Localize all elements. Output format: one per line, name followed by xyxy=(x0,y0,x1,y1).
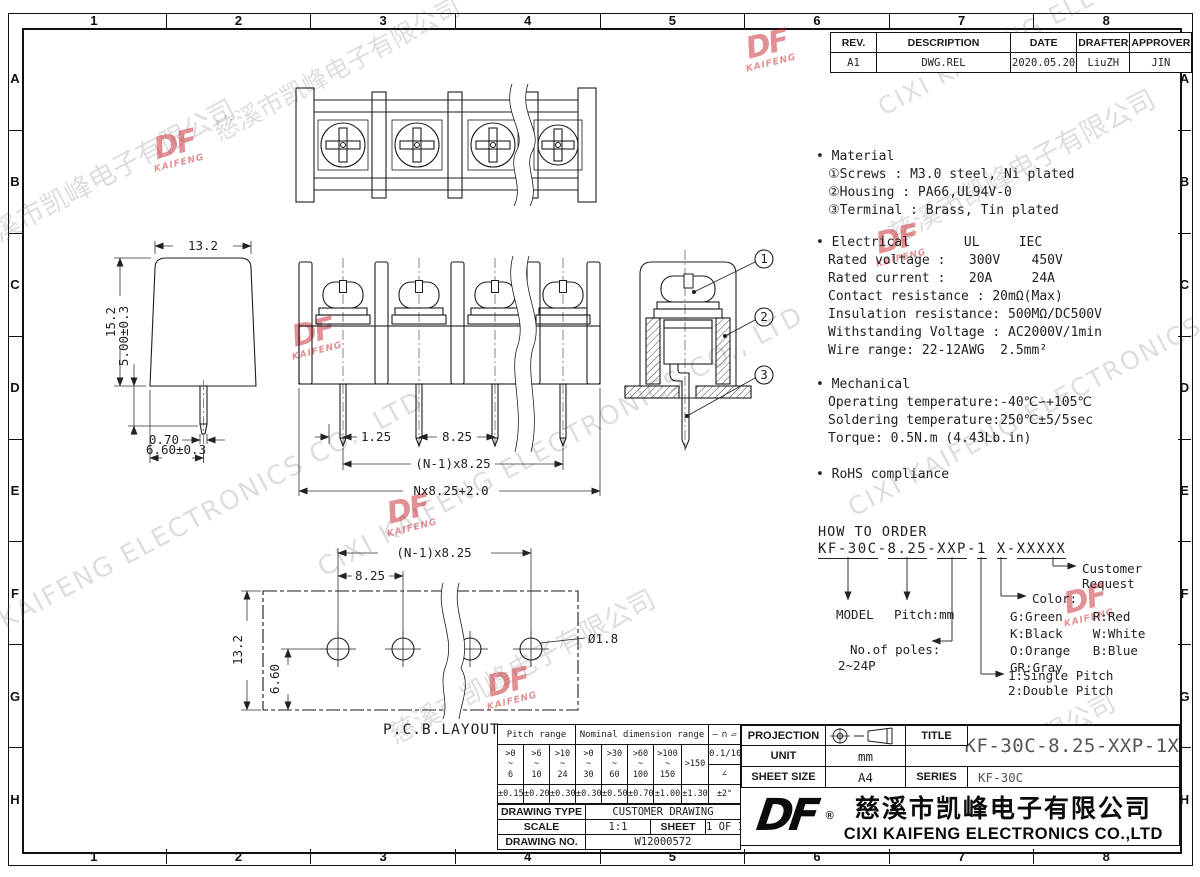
angle-symbol: ∠ xyxy=(709,764,740,784)
revision-header-row: REV. DESCRIPTION DATE DRAFTER APPROVER xyxy=(831,33,1192,53)
tolerance-block: Pitch range Nominal dimension range —∩▱ … xyxy=(497,724,741,850)
approver-value: JIN xyxy=(1130,53,1192,73)
electrical-title: • Electrical xyxy=(816,235,910,250)
order-label-model: MODEL xyxy=(836,606,874,623)
grid-col-label: 1 xyxy=(22,13,167,28)
dim-side-pin-offset: 6.60±0.3 xyxy=(146,442,206,457)
material-title: • Material xyxy=(816,148,1190,166)
drawing-sheet: 慈溪市凯峰电子有限公司 慈溪市凯峰电子有限公司 慈溪市凯峰电子有限公司 CIXI… xyxy=(0,0,1200,877)
description-header: DESCRIPTION xyxy=(877,33,1011,53)
dim-front-d: Nx8.25+2.0 xyxy=(413,483,488,498)
tolerance-cell: ±0.20 xyxy=(524,785,550,804)
order-label-color: Color: xyxy=(1032,590,1077,607)
grid-col-label: 8 xyxy=(1034,849,1178,864)
revision-data-row: A1 DWG.REL 2020.05.20 LiuZH JIN xyxy=(831,53,1192,73)
grid-row-label: H xyxy=(8,748,22,850)
dim-side-pin-length: 5.00±0.3 xyxy=(116,306,131,366)
grid-row-label: C xyxy=(8,234,22,337)
order-color-row: G:Green R:Red xyxy=(1010,608,1130,625)
tolerance-cell: ±0.15 xyxy=(498,785,524,804)
material-line: ②Housing : PA66,UL94V-0 xyxy=(816,184,1190,202)
grid-col-label: 3 xyxy=(311,849,456,864)
callout-3: 3 xyxy=(760,367,768,382)
mechanical-title: • Mechanical xyxy=(816,376,1190,394)
dim-front-a: 1.25 xyxy=(361,429,391,444)
date-value: 2020.05.20 xyxy=(1011,53,1077,73)
approver-header: APPROVER xyxy=(1130,33,1192,53)
angle-ratio: 0.1/10 xyxy=(709,745,740,764)
company-area: DF ® 慈溪市凯峰电子有限公司 CIXI KAIFENG ELECTRONIC… xyxy=(741,787,1179,845)
drawing-no-value: W12000572 xyxy=(586,835,741,850)
sheet-size-value: A4 xyxy=(825,766,906,788)
arc-symbol: ∩ xyxy=(722,730,727,740)
how-to-order: HOW TO ORDER KF-30C-8.25-XXP-1 X-XXXXX M… xyxy=(818,524,1190,714)
top-view-drawing xyxy=(286,84,606,206)
projection-label: PROJECTION xyxy=(741,725,826,746)
drawing-type-value: CUSTOMER DRAWING xyxy=(586,805,741,820)
grid-row-label: E xyxy=(8,440,22,543)
grid-row-label: G xyxy=(8,645,22,748)
side-view-drawing: 13.2 15.2 5.00±0.3 0.70 6.60±0.3 xyxy=(88,236,278,476)
dim-pcb-a: (N-1)x8.25 xyxy=(396,545,471,560)
electrical-line: Wire range: 22-12AWG 2.5mm² xyxy=(816,342,1190,360)
dim-pcb-b: 8.25 xyxy=(355,568,385,583)
electrical-line: Rated voltage : 300V 450V xyxy=(816,252,1190,270)
order-label-request: Request xyxy=(1082,575,1135,592)
sheet-size-label: SHEET SIZE xyxy=(741,766,826,788)
drafter-value: LiuZH xyxy=(1077,53,1130,73)
rohs-title: • RoHS compliance xyxy=(816,466,1190,484)
electrical-line: Withstanding Voltage : AC2000V/1min xyxy=(816,324,1190,342)
sheet-label: SHEET xyxy=(651,820,706,835)
range-cell: >100 ~ 150 xyxy=(654,745,682,785)
grid-col-label: 6 xyxy=(745,849,890,864)
scale-label: SCALE xyxy=(498,820,586,835)
material-line: ①Screws : M3.0 steel, Ni plated xyxy=(816,166,1190,184)
range-cell: >10 ~ 24 xyxy=(550,745,576,785)
order-color-row: O:Orange B:Blue xyxy=(1010,642,1138,659)
title-block: PROJECTION KF-30C-8.25-XXP-1X TITLE UNIT… xyxy=(740,724,1180,846)
order-label-double-pitch: 2:Double Pitch xyxy=(1008,682,1113,699)
dim-front-c: (N-1)x8.25 xyxy=(415,456,490,471)
company-name-cn: 慈溪市凯峰电子有限公司 xyxy=(855,789,1152,825)
tolerance-cell: ±0.70 xyxy=(628,785,654,804)
order-color-row: K:Black W:White xyxy=(1010,625,1145,642)
mechanical-line: Soldering temperature:250℃±5/5sec xyxy=(816,412,1190,430)
tolerance-table: Pitch range Nominal dimension range —∩▱ … xyxy=(497,724,741,804)
projection-symbol xyxy=(825,725,906,746)
dim-pcb-hole: Ø1.8 xyxy=(588,631,618,646)
mechanical-line: Operating temperature:-40℃∽+105℃ xyxy=(816,394,1190,412)
order-label-poles: No.of poles: xyxy=(850,641,940,658)
scale-value: 1:1 xyxy=(586,820,651,835)
drafter-header: DRAFTER xyxy=(1077,33,1130,53)
material-line: ③Terminal : Brass, Tin plated xyxy=(816,202,1190,220)
order-label-poles-range: 2~24P xyxy=(838,657,876,674)
pcb-layout-caption: P.C.B.LAYOUT xyxy=(383,722,500,738)
range-cell: >30 ~ 60 xyxy=(602,745,628,785)
grid-col-label: 4 xyxy=(456,849,601,864)
dim-pcb-h: 13.2 xyxy=(233,635,245,665)
angle-cell: 0.1/10∠ xyxy=(709,745,741,785)
grid-col-label: 2 xyxy=(167,849,312,864)
date-header: DATE xyxy=(1011,33,1077,53)
front-view-drawing: 1.25 8.25 (N-1)x8.25 Nx8.25+2.0 xyxy=(291,256,603,506)
tolerance-cell: ±0.30 xyxy=(550,785,576,804)
pcb-layout-drawing: (N-1)x8.25 8.25 13.2 6.60 Ø1.8 xyxy=(233,543,623,721)
company-name-en: CIXI KAIFENG ELECTRONICS CO.,LTD xyxy=(844,825,1163,844)
unit-value: mm xyxy=(825,745,906,767)
range-over-cell: >150 xyxy=(682,745,709,785)
dim-front-b: 8.25 xyxy=(442,429,472,444)
straightness-symbol: — xyxy=(712,730,717,740)
unit-label: UNIT xyxy=(741,745,826,767)
range-cell: >60 ~ 100 xyxy=(628,745,654,785)
specifications: • Material ①Screws : M3.0 steel, Ni plat… xyxy=(816,148,1190,484)
tolerance-cell: ±0.30 xyxy=(576,785,602,804)
grid-row-label: D xyxy=(8,337,22,440)
description-value: DWG.REL xyxy=(877,53,1011,73)
grid-columns-bottom: 1 2 3 4 5 6 7 8 xyxy=(22,849,1178,864)
electrical-title-row: • ElectricalUL IEC xyxy=(816,234,1190,252)
range-cell: >0 ~ 30 xyxy=(576,745,602,785)
mechanical-line: Torque: 0.5N.m (4.43Lb.in) xyxy=(816,430,1190,448)
drawing-no-label: DRAWING NO. xyxy=(498,835,586,850)
pitch-range-header: Pitch range xyxy=(498,725,576,745)
title-label: TITLE xyxy=(905,725,968,746)
registered-mark: ® xyxy=(826,810,834,822)
grid-col-label: 5 xyxy=(601,849,746,864)
dim-side-width: 13.2 xyxy=(188,238,218,253)
order-title: HOW TO ORDER xyxy=(818,524,1190,540)
tolerance-cell: ±0.50 xyxy=(602,785,628,804)
rev-header: REV. xyxy=(831,33,877,53)
callout-1: 1 xyxy=(760,251,768,266)
series-label: SERIES xyxy=(905,766,968,788)
grid-col-label: 5 xyxy=(601,13,746,28)
tolerance-cell: ±1.00 xyxy=(654,785,682,804)
company-logo: DF xyxy=(754,796,818,836)
electrical-column-headers: UL IEC xyxy=(964,235,1042,250)
rev-value: A1 xyxy=(831,53,877,73)
tolerance-cell: ±1.30 xyxy=(682,785,709,804)
electrical-line: Contact resistance : 20mΩ(Max) xyxy=(816,288,1190,306)
electrical-line: Rated current : 20A 24A xyxy=(816,270,1190,288)
sheet-value: 1 OF 1 xyxy=(706,820,741,835)
section-view-drawing: 1 2 3 xyxy=(612,246,784,454)
nominal-range-header: Nominal dimension range xyxy=(576,725,709,745)
callout-2: 2 xyxy=(760,309,768,324)
drawing-type-label: DRAWING TYPE xyxy=(498,805,586,820)
revision-table: REV. DESCRIPTION DATE DRAFTER APPROVER A… xyxy=(830,32,1192,73)
grid-col-label: 4 xyxy=(456,13,601,28)
grid-col-label: 7 xyxy=(890,849,1035,864)
dim-pcb-v: 6.60 xyxy=(267,664,282,694)
drawing-info-table: DRAWING TYPE CUSTOMER DRAWING SCALE 1:1 … xyxy=(497,804,741,850)
range-cell: >6 ~ 10 xyxy=(524,745,550,785)
series-value: KF-30C xyxy=(967,766,1181,788)
grid-row-label: A xyxy=(8,28,22,131)
grid-col-label: 2 xyxy=(167,13,312,28)
angle-tolerance-cell: ±2° xyxy=(709,785,741,804)
grid-rows-left: A B C D E F G H xyxy=(8,28,22,850)
grid-col-label: 1 xyxy=(22,849,167,864)
order-label-pitch: Pitch:mm xyxy=(894,606,954,623)
range-cell: >0 ~ 6 xyxy=(498,745,524,785)
electrical-line: Insulation resistance: 500MΩ/DC500V xyxy=(816,306,1190,324)
geometry-symbols: —∩▱ xyxy=(709,725,741,745)
parallelogram-symbol: ▱ xyxy=(731,730,736,740)
